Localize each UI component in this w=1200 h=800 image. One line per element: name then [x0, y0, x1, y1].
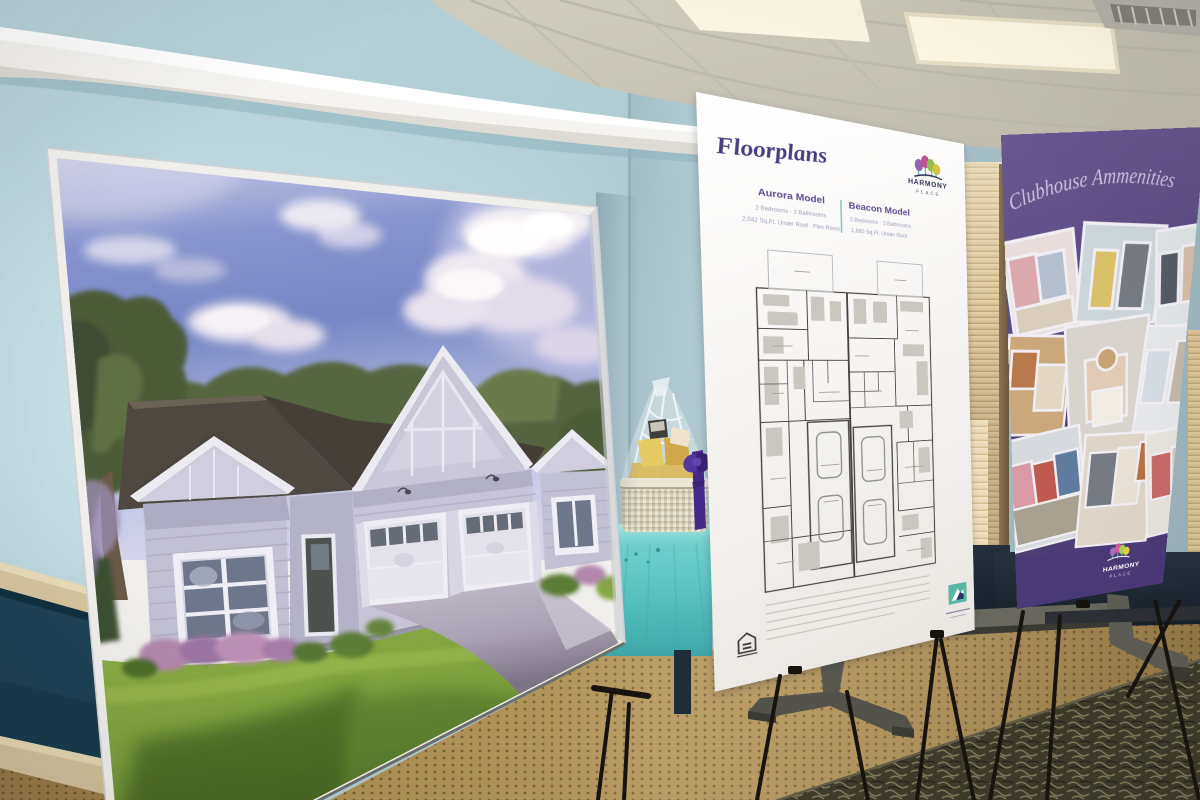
svg-text:HARMONY: HARMONY [908, 176, 948, 190]
svg-text:Aurora Model: Aurora Model [758, 186, 825, 206]
svg-text:Clubhouse Ammenities: Clubhouse Ammenities [1005, 161, 1178, 216]
svg-text:2 Bedrooms · 2 Bathrooms: 2 Bedrooms · 2 Bathrooms [755, 204, 826, 219]
svg-text:Beacon Model: Beacon Model [849, 200, 911, 218]
svg-text:1,880 Sq.Ft. Under Roof: 1,880 Sq.Ft. Under Roof [851, 227, 907, 239]
svg-text:PLACE: PLACE [916, 189, 940, 198]
svg-text:Floorplans: Floorplans [714, 132, 829, 169]
